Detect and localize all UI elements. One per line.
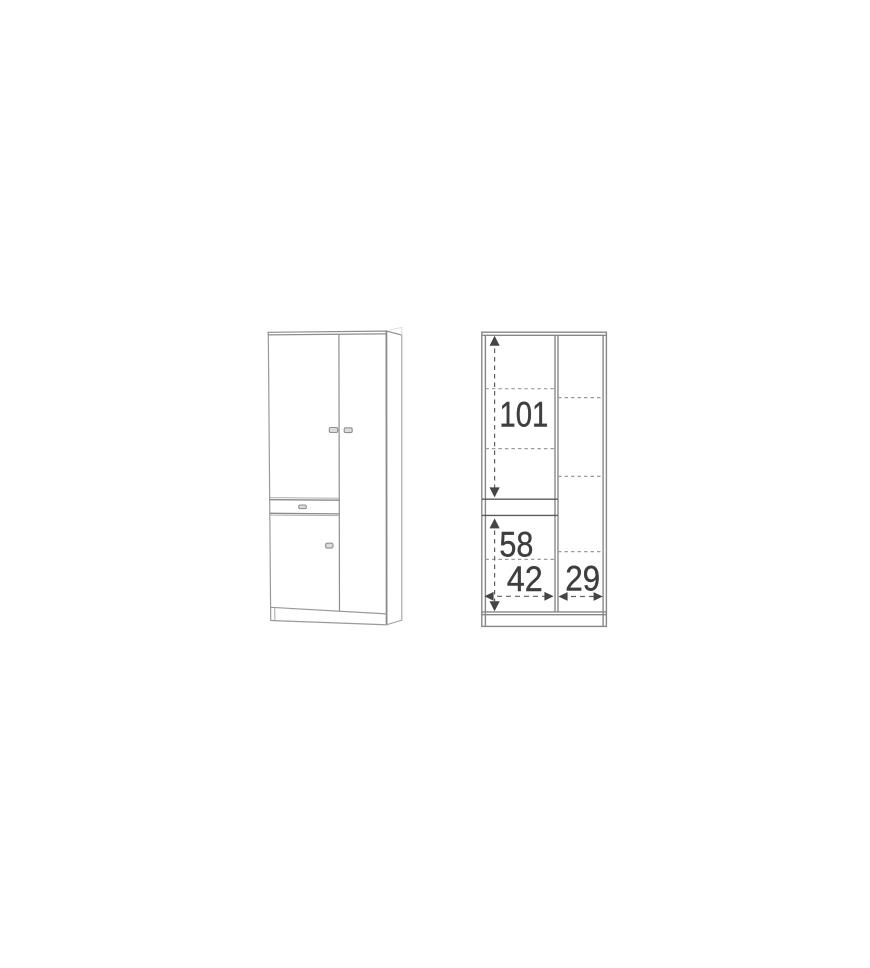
svg-text:101: 101 [499, 396, 548, 435]
svg-text:58: 58 [499, 526, 533, 565]
svg-text:29: 29 [565, 560, 600, 599]
svg-text:42: 42 [507, 560, 543, 599]
